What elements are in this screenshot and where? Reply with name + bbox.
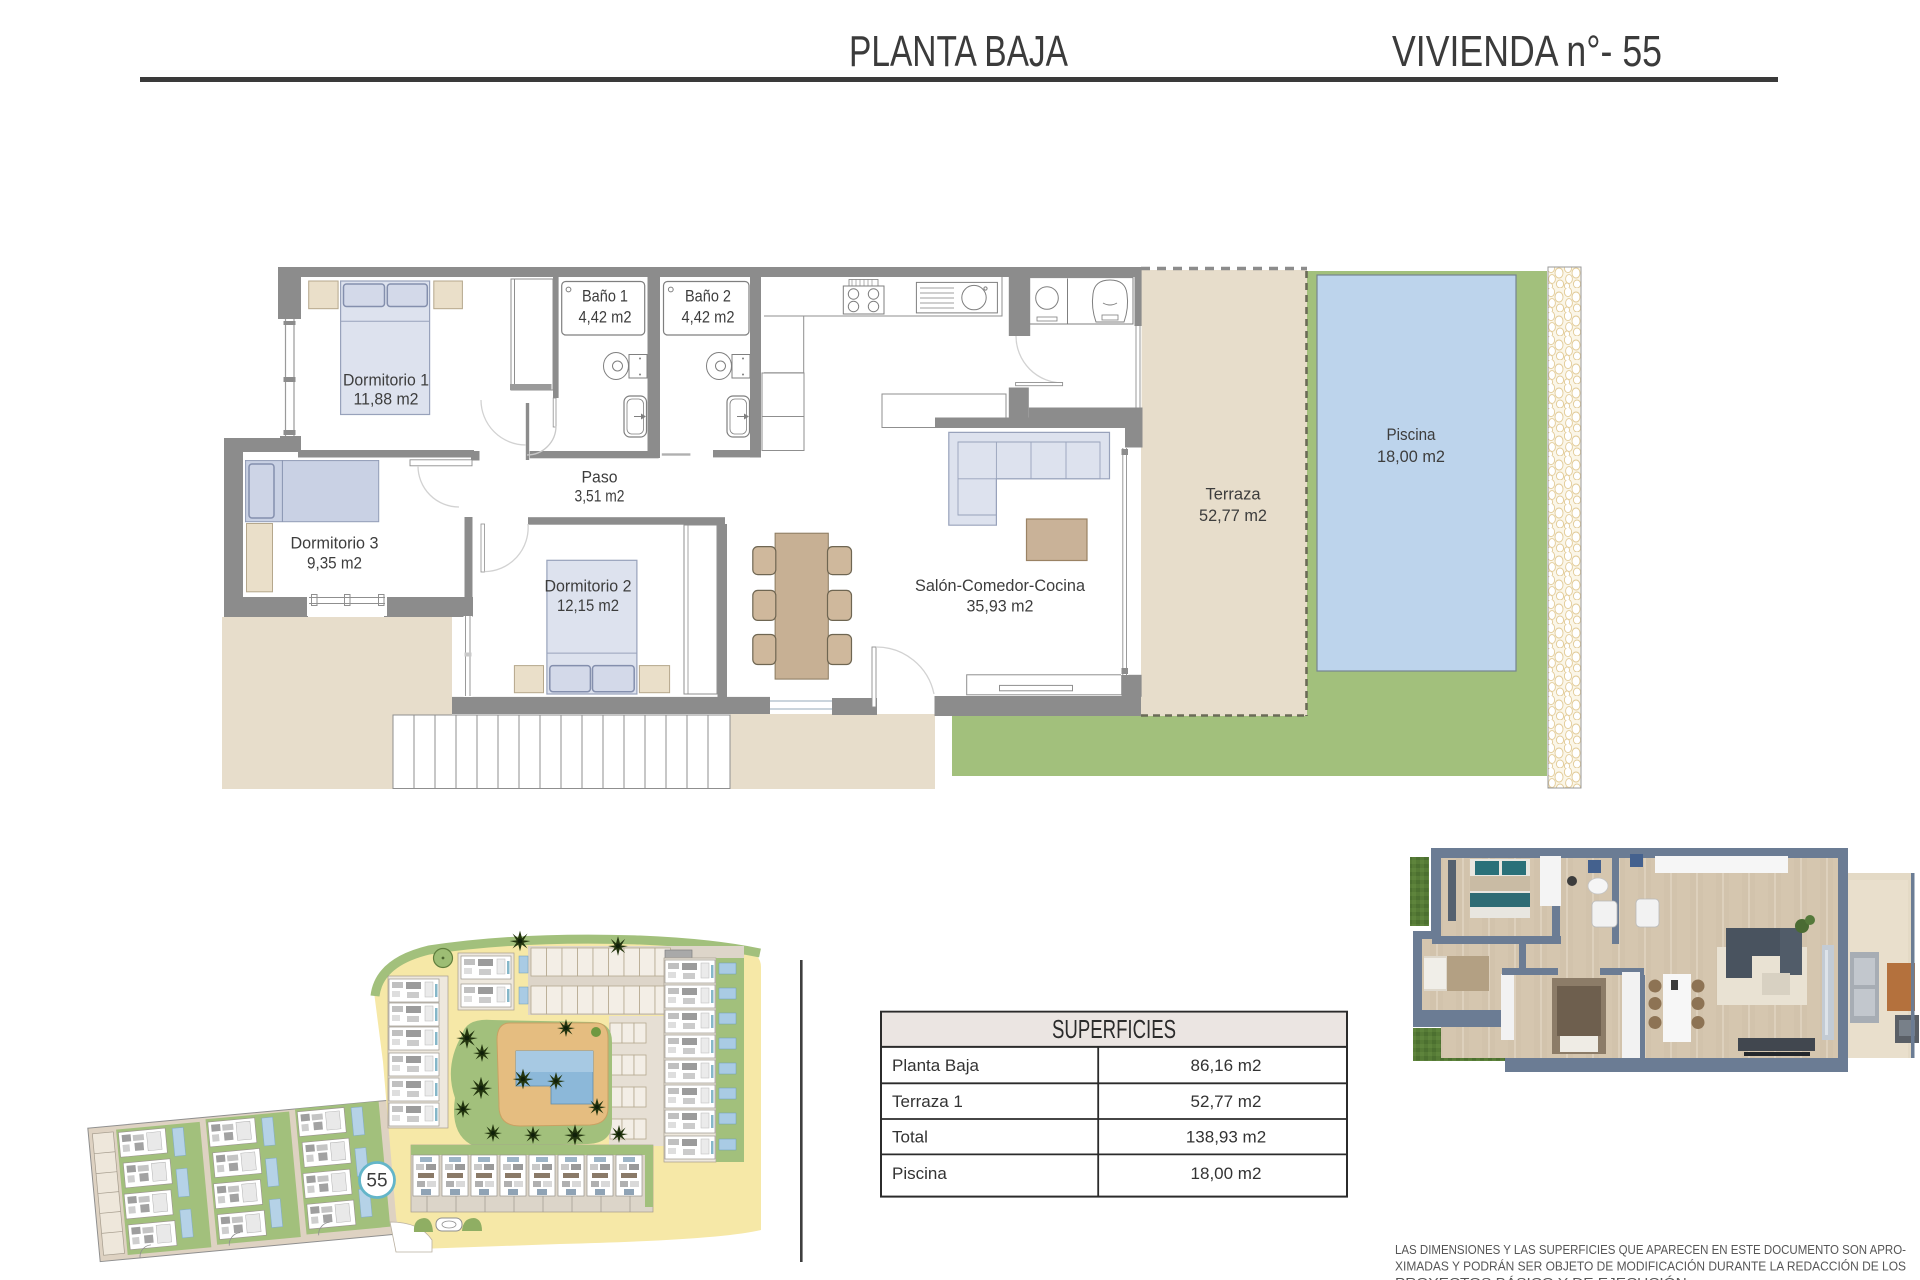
svg-text:Paso: Paso (582, 469, 618, 487)
svg-text:Dormitorio 3: Dormitorio 3 (291, 535, 379, 553)
svg-text:PLANTA BAJA: PLANTA BAJA (849, 27, 1068, 76)
svg-text:86,16 m2: 86,16 m2 (1191, 1056, 1262, 1075)
svg-text:55: 55 (366, 1171, 387, 1192)
svg-text:Dormitorio 2: Dormitorio 2 (545, 578, 632, 596)
svg-text:PROYECTOS BÁSICO Y DE EJECUCIÓ: PROYECTOS BÁSICO Y DE EJECUCIÓN. (1395, 1275, 1691, 1280)
svg-text:SUPERFICIES: SUPERFICIES (1052, 1014, 1176, 1044)
svg-text:Piscina: Piscina (1387, 426, 1437, 444)
svg-text:LAS DIMENSIONES Y LAS SUPERFIC: LAS DIMENSIONES Y LAS SUPERFICIES QUE AP… (1395, 1242, 1906, 1257)
svg-text:Piscina: Piscina (892, 1164, 947, 1183)
svg-text:12,15 m2: 12,15 m2 (557, 597, 619, 615)
svg-text:52,77 m2: 52,77 m2 (1199, 507, 1267, 525)
svg-text:Total: Total (892, 1128, 928, 1147)
svg-text:11,88 m2: 11,88 m2 (354, 391, 419, 409)
svg-text:VIVIENDA n°- 55: VIVIENDA n°- 55 (1392, 27, 1662, 76)
svg-text:35,93 m2: 35,93 m2 (967, 598, 1034, 616)
svg-text:Terraza: Terraza (1206, 486, 1262, 504)
svg-text:4,42 m2: 4,42 m2 (682, 309, 735, 327)
svg-text:3,51 m2: 3,51 m2 (575, 488, 625, 506)
svg-text:9,35 m2: 9,35 m2 (307, 555, 362, 573)
svg-text:XIMADAS Y PODRÁN SER OBJETO DE: XIMADAS Y PODRÁN SER OBJETO DE MODIFICAC… (1395, 1259, 1906, 1274)
svg-text:Baño 1: Baño 1 (582, 288, 628, 306)
svg-text:Salón-Comedor-Cocina: Salón-Comedor-Cocina (915, 577, 1086, 595)
svg-text:Planta Baja: Planta Baja (892, 1056, 979, 1075)
svg-text:18,00 m2: 18,00 m2 (1377, 448, 1445, 466)
svg-text:Dormitorio 1: Dormitorio 1 (343, 372, 429, 390)
svg-text:4,42 m2: 4,42 m2 (579, 309, 632, 327)
svg-text:18,00 m2: 18,00 m2 (1191, 1164, 1262, 1183)
svg-text:52,77 m2: 52,77 m2 (1191, 1092, 1262, 1111)
svg-text:Baño 2: Baño 2 (685, 288, 731, 306)
svg-text:Terraza 1: Terraza 1 (892, 1092, 963, 1111)
svg-text:138,93 m2: 138,93 m2 (1186, 1128, 1266, 1147)
